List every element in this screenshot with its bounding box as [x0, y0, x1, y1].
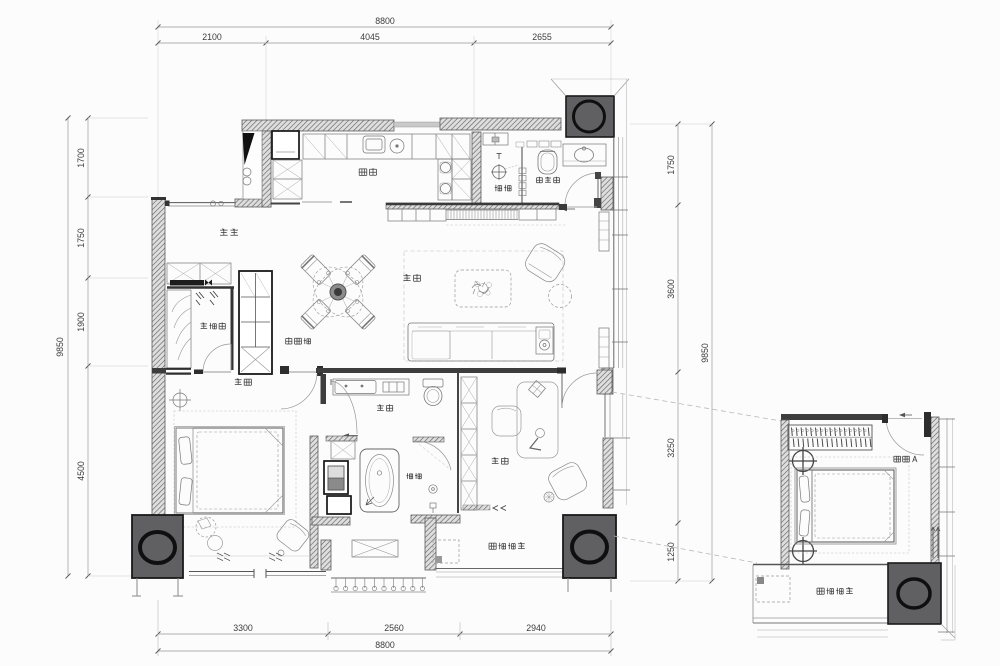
svg-text:1900: 1900: [76, 312, 86, 332]
svg-text:9850: 9850: [700, 343, 710, 363]
svg-text:1700: 1700: [76, 148, 86, 168]
svg-text:2655: 2655: [532, 32, 552, 42]
svg-text:2100: 2100: [202, 32, 222, 42]
svg-text:2940: 2940: [526, 623, 546, 633]
svg-text:1750: 1750: [666, 155, 676, 175]
svg-text:4045: 4045: [360, 32, 380, 42]
svg-text:3250: 3250: [666, 438, 676, 458]
svg-text:4500: 4500: [76, 461, 86, 481]
svg-text:1250: 1250: [666, 542, 676, 562]
svg-text:9850: 9850: [55, 337, 65, 357]
svg-text:8800: 8800: [375, 16, 395, 26]
svg-text:8800: 8800: [375, 640, 395, 650]
svg-text:1750: 1750: [76, 228, 86, 248]
svg-text:2560: 2560: [384, 623, 404, 633]
svg-text:3300: 3300: [233, 623, 253, 633]
svg-text:3600: 3600: [666, 279, 676, 299]
